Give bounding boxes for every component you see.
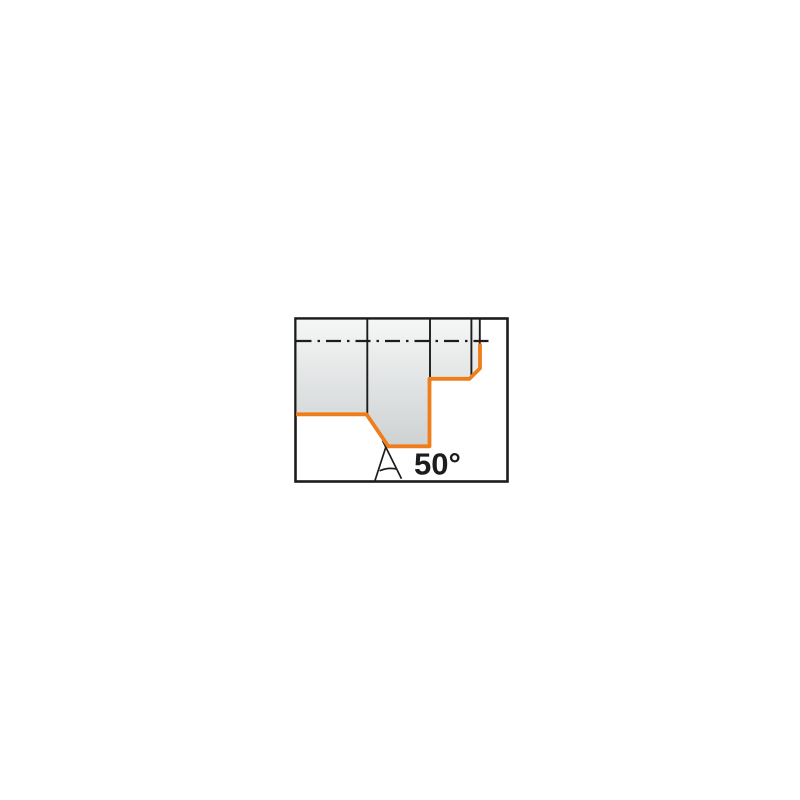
tool-profile-diagram: 50° bbox=[0, 0, 800, 800]
page-background: 50° bbox=[0, 0, 800, 800]
angle-value-label: 50° bbox=[414, 447, 461, 482]
